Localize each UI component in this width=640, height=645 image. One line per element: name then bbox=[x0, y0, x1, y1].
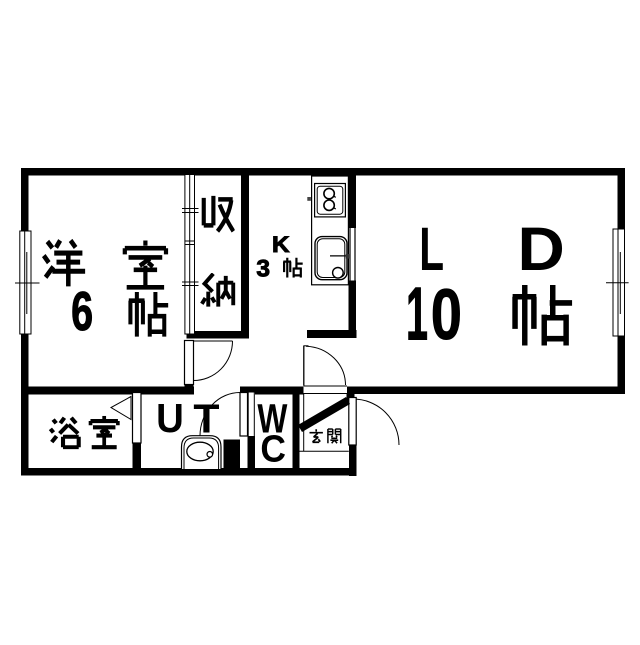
svg-text:6: 6 bbox=[71, 281, 93, 342]
svg-text:0: 0 bbox=[431, 275, 462, 355]
svg-text:K: K bbox=[272, 232, 290, 257]
svg-text:U: U bbox=[156, 395, 184, 441]
svg-text:3: 3 bbox=[256, 255, 270, 282]
svg-text:1: 1 bbox=[406, 271, 428, 355]
svg-text:T: T bbox=[193, 395, 219, 441]
svg-text:C: C bbox=[260, 428, 286, 470]
svg-text:D: D bbox=[518, 215, 565, 283]
